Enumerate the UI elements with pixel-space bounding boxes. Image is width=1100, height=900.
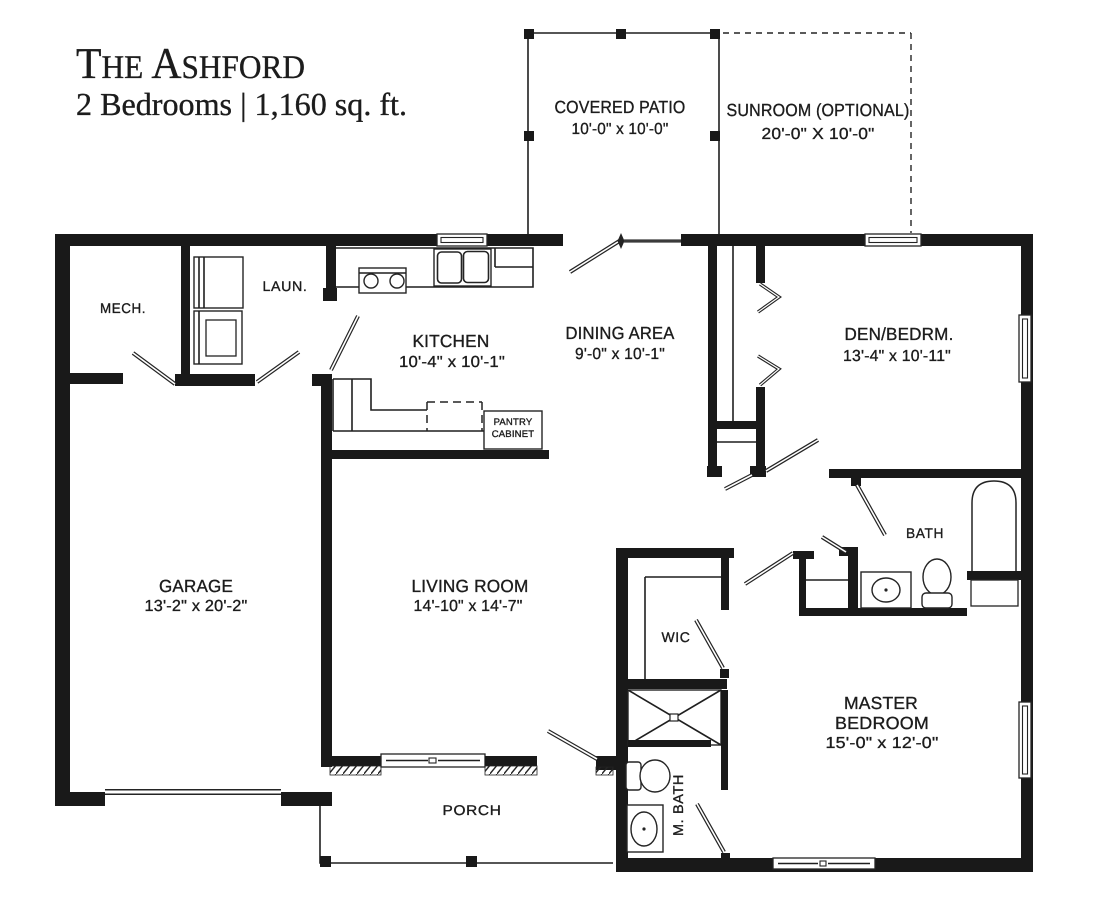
svg-text:10'-4" x 10'-1": 10'-4" x 10'-1" xyxy=(399,354,505,371)
svg-text:10'-0" x 10'-0": 10'-0" x 10'-0" xyxy=(572,121,669,138)
svg-text:SUNROOM (OPTIONAL): SUNROOM (OPTIONAL) xyxy=(727,100,910,120)
svg-text:20'-0" X 10'-0": 20'-0" X 10'-0" xyxy=(762,126,875,143)
svg-text:15'-0" x 12'-0": 15'-0" x 12'-0" xyxy=(826,735,939,752)
svg-text:GARAGE: GARAGE xyxy=(159,576,233,596)
svg-text:WIC: WIC xyxy=(662,629,691,645)
svg-text:BATH: BATH xyxy=(906,525,944,541)
svg-text:LIVING ROOM: LIVING ROOM xyxy=(412,576,529,596)
svg-text:KITCHEN: KITCHEN xyxy=(413,331,490,351)
svg-text:2 Bedrooms | 1,160 sq. ft.: 2 Bedrooms | 1,160 sq. ft. xyxy=(76,86,407,122)
svg-text:DINING AREA: DINING AREA xyxy=(566,323,675,343)
svg-text:MASTER: MASTER xyxy=(844,693,918,713)
svg-text:LAUN.: LAUN. xyxy=(263,278,308,294)
svg-text:PORCH: PORCH xyxy=(443,802,502,818)
svg-text:9'-0" x 10'-1": 9'-0" x 10'-1" xyxy=(575,346,665,363)
svg-text:14'-10" x 14'-7": 14'-10" x 14'-7" xyxy=(414,598,523,615)
svg-text:13'-2" x 20'-2": 13'-2" x 20'-2" xyxy=(145,598,248,615)
svg-text:13'-4" x 10'-11": 13'-4" x 10'-11" xyxy=(843,348,951,365)
svg-text:CABINET: CABINET xyxy=(492,429,535,440)
svg-text:BEDROOM: BEDROOM xyxy=(835,713,929,733)
svg-text:MECH.: MECH. xyxy=(100,300,146,316)
svg-text:M. BATH: M. BATH xyxy=(670,774,686,836)
svg-text:COVERED PATIO: COVERED PATIO xyxy=(555,97,686,117)
svg-text:DEN/BEDRM.: DEN/BEDRM. xyxy=(845,324,954,344)
svg-text:PANTRY: PANTRY xyxy=(494,417,533,428)
